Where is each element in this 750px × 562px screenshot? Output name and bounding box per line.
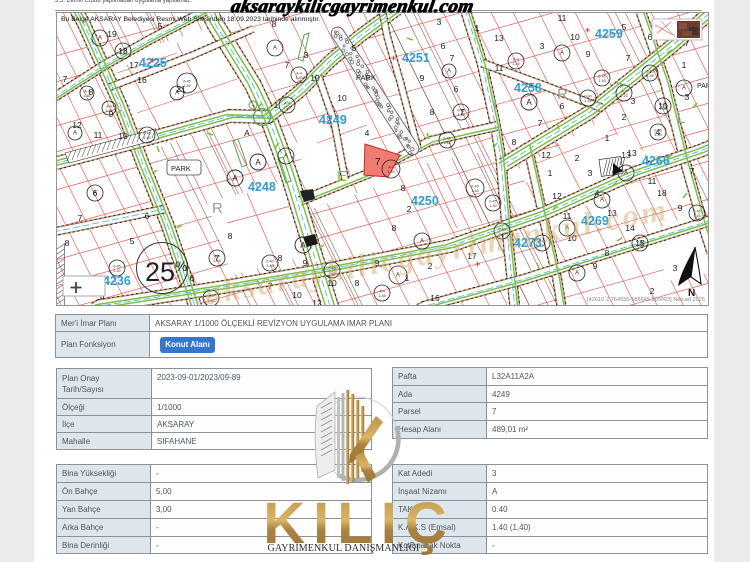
svg-text:3: 3: [588, 168, 593, 178]
svg-text:9: 9: [109, 109, 114, 119]
svg-text:A: A: [98, 36, 102, 42]
svg-text:A-4: A-4: [296, 71, 302, 75]
svg-text:10: 10: [658, 101, 668, 111]
svg-text:1: 1: [548, 168, 553, 178]
svg-text:0-45: 0-45: [471, 184, 478, 188]
svg-text:2: 2: [622, 112, 627, 122]
svg-text:4251: 4251: [402, 51, 430, 65]
svg-text:[42610´2.764555-588645.909003]: [42610´2.764555-588645.909003] Netcad 20…: [587, 297, 705, 303]
svg-text:11: 11: [495, 63, 504, 73]
svg-text:3: 3: [673, 263, 678, 273]
svg-text:3: 3: [540, 41, 545, 51]
svg-text:4266: 4266: [642, 154, 670, 168]
svg-text:1-40: 1-40: [471, 189, 478, 193]
svg-text:I: I: [493, 96, 497, 113]
svg-text:A-4: A-4: [513, 57, 519, 61]
svg-text:19: 19: [107, 29, 117, 39]
svg-text:3: 3: [685, 92, 690, 102]
svg-text:16: 16: [137, 75, 147, 85]
svg-text:4: 4: [656, 127, 661, 137]
svg-text:1-45: 1-45: [443, 141, 450, 145]
svg-text:12: 12: [72, 120, 82, 130]
svg-text:A: A: [575, 271, 579, 277]
svg-text:8: 8: [430, 107, 435, 117]
svg-text:7: 7: [375, 157, 381, 168]
svg-text:3: 3: [304, 50, 309, 60]
svg-text:A: A: [300, 241, 306, 250]
svg-text:1-45: 1-45: [646, 74, 653, 78]
svg-text:8: 8: [605, 248, 610, 258]
svg-text:12: 12: [552, 191, 562, 201]
svg-text:9: 9: [586, 49, 591, 59]
svg-text:7: 7: [690, 166, 695, 176]
svg-text:4: 4: [595, 188, 600, 198]
svg-text:6: 6: [190, 273, 195, 283]
svg-text:A-4: A-4: [621, 89, 627, 93]
svg-text:1-45: 1-45: [584, 99, 591, 103]
svg-text:7: 7: [626, 53, 631, 63]
svg-text:2: 2: [650, 286, 655, 296]
svg-text:0-40: 0-40: [584, 94, 591, 98]
svg-text:10: 10: [570, 32, 580, 42]
svg-text:PARK: PARK: [356, 73, 376, 82]
svg-text:A: A: [447, 69, 451, 75]
svg-text:1-40: 1-40: [489, 204, 496, 208]
svg-text:11: 11: [94, 130, 103, 140]
svg-text:1-45: 1-45: [378, 294, 385, 298]
svg-text:R: R: [212, 200, 223, 217]
svg-text:PARK: PARK: [171, 164, 191, 173]
svg-text:7: 7: [78, 213, 83, 223]
svg-text:4249: 4249: [319, 113, 347, 127]
svg-text:6-45: 6-45: [183, 79, 190, 83]
svg-text:1-40: 1-40: [143, 136, 150, 140]
svg-text:A-4: A-4: [284, 101, 290, 105]
svg-text:E: E: [337, 168, 347, 185]
svg-text:+: +: [150, 55, 155, 65]
svg-text:L: L: [677, 110, 685, 127]
svg-text:4248: 4248: [248, 180, 276, 194]
svg-text:7: 7: [460, 107, 465, 117]
svg-text:1-45: 1-45: [693, 214, 700, 218]
svg-text:1-45: 1-45: [598, 79, 605, 83]
svg-text:6-45: 6-45: [113, 264, 120, 268]
svg-text:2: 2: [575, 153, 580, 163]
svg-text:3: 3: [437, 17, 442, 27]
svg-text:8: 8: [228, 231, 233, 241]
svg-text:6: 6: [454, 84, 459, 94]
svg-text:9: 9: [593, 261, 598, 271]
svg-text:A: A: [232, 174, 238, 183]
svg-text:A: A: [682, 86, 686, 92]
svg-text:A: A: [255, 158, 261, 167]
svg-text:1-40: 1-40: [295, 76, 302, 80]
svg-text:10: 10: [310, 73, 320, 83]
svg-text:0-45: 0-45: [443, 136, 450, 140]
svg-text:1-40: 1-40: [113, 269, 120, 273]
svg-text:12: 12: [541, 150, 551, 160]
svg-text:8: 8: [401, 183, 406, 193]
svg-text:1: 1: [605, 133, 610, 143]
svg-text:A: A: [244, 128, 250, 138]
svg-text:1: 1: [682, 60, 687, 70]
svg-text:8: 8: [65, 238, 70, 248]
svg-text:A: A: [560, 51, 564, 57]
svg-text:+: +: [391, 53, 396, 63]
svg-text:A: A: [284, 154, 288, 160]
svg-text:+: +: [585, 25, 590, 35]
svg-text:7-23: 7-23: [283, 106, 290, 110]
svg-text:4: 4: [365, 128, 370, 138]
svg-text:4250: 4250: [411, 194, 439, 208]
svg-text:A: A: [624, 171, 628, 177]
svg-text:1: 1: [475, 23, 480, 33]
svg-text:11: 11: [558, 13, 567, 23]
svg-text:A-4: A-4: [379, 289, 385, 293]
svg-text:8: 8: [89, 87, 94, 97]
svg-text:A: A: [73, 131, 77, 137]
svg-text:21: 21: [176, 84, 186, 94]
svg-text:16: 16: [430, 293, 440, 303]
svg-text:7: 7: [538, 118, 543, 128]
svg-text:A-4: A-4: [388, 165, 394, 169]
svg-text:11: 11: [648, 176, 657, 186]
svg-text:6-45: 6-45: [598, 74, 605, 78]
svg-text:8: 8: [392, 223, 397, 233]
svg-text:A: A: [526, 98, 532, 107]
svg-text:A-4: A-4: [106, 104, 112, 108]
svg-text:8: 8: [512, 137, 517, 147]
svg-text:10: 10: [118, 131, 128, 141]
svg-text:5: 5: [352, 43, 357, 53]
svg-text:1-45: 1-45: [512, 62, 519, 66]
svg-text:7: 7: [285, 60, 290, 70]
svg-text:13: 13: [627, 148, 637, 158]
svg-text:4258: 4258: [514, 81, 542, 95]
svg-text:15: 15: [635, 238, 645, 248]
svg-text:R: R: [557, 86, 568, 103]
svg-text:9: 9: [678, 203, 683, 213]
svg-text:1: 1: [274, 100, 279, 110]
svg-text:6: 6: [145, 211, 150, 221]
svg-text:6-45: 6-45: [646, 69, 653, 73]
svg-text:6: 6: [441, 41, 446, 51]
svg-text:10: 10: [337, 93, 347, 103]
svg-text:7: 7: [63, 74, 68, 84]
svg-text:12: 12: [312, 298, 322, 305]
svg-text:PARK: PARK: [697, 83, 708, 90]
svg-text:1-45: 1-45: [387, 170, 394, 174]
svg-text:4259: 4259: [595, 27, 623, 41]
svg-text:0-45: 0-45: [489, 199, 496, 203]
svg-text:5: 5: [130, 236, 135, 246]
svg-text:6: 6: [93, 188, 98, 198]
svg-text:6-45: 6-45: [143, 131, 150, 135]
svg-text:3: 3: [631, 96, 636, 106]
svg-text:18: 18: [118, 46, 128, 56]
svg-text:A: A: [273, 46, 277, 52]
svg-text:9: 9: [420, 73, 425, 83]
svg-text:7: 7: [215, 253, 220, 263]
svg-text:4236: 4236: [103, 274, 131, 288]
svg-text:17: 17: [129, 60, 139, 70]
svg-text:7-23: 7-23: [620, 94, 627, 98]
svg-text:6-45: 6-45: [693, 209, 700, 213]
svg-text:13: 13: [494, 33, 504, 43]
svg-text:7: 7: [450, 53, 455, 63]
